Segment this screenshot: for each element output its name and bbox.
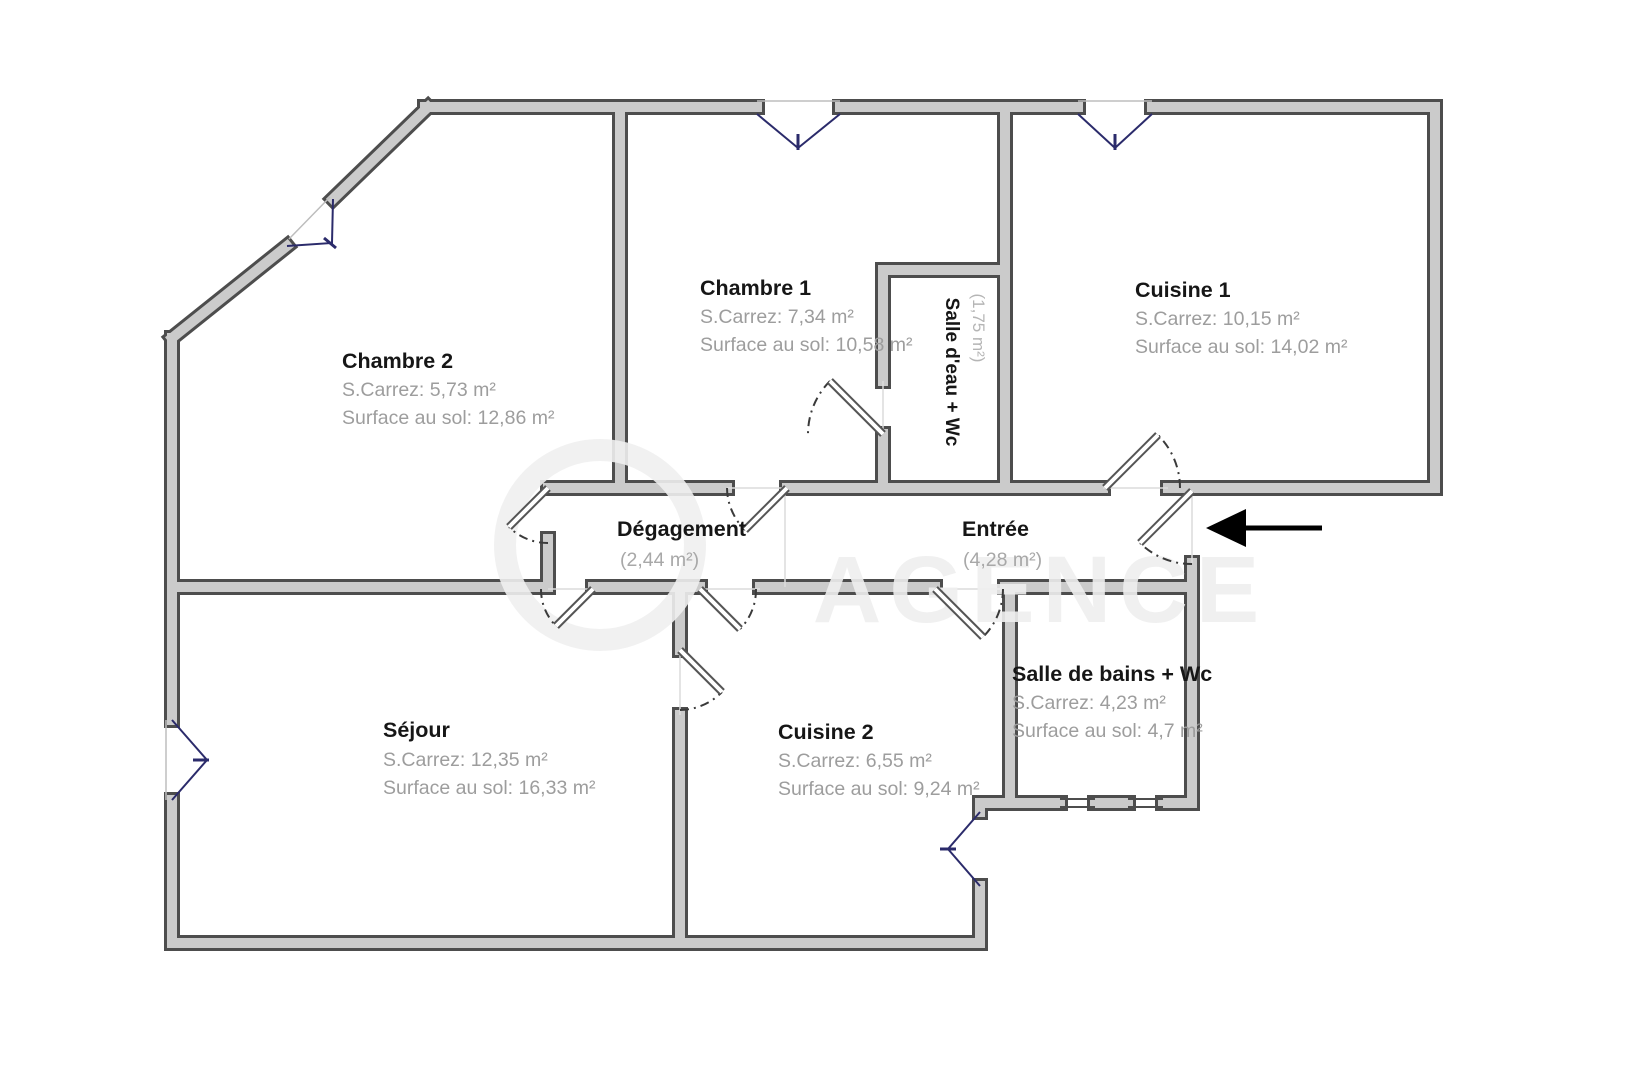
sejour-carrez: S.Carrez: 12,35 m² — [383, 749, 548, 771]
chambre1-floor: Surface au sol: 10,58 m² — [700, 334, 913, 356]
watermark-ring — [505, 450, 695, 640]
sejour-title: Séjour — [383, 718, 451, 742]
salle-de-bains-title: Salle de bains + Wc — [1012, 662, 1212, 686]
room-label-salle-deau: Salle d'eau + Wc (1,75 m²) — [941, 294, 988, 447]
degagement-area: (2,44 m²) — [620, 549, 699, 571]
chambre2-floor: Surface au sol: 12,86 m² — [342, 407, 555, 429]
cuisine2-title: Cuisine 2 — [778, 720, 874, 744]
room-label-salle-de-bains: Salle de bains + Wc S.Carrez: 4,23 m² Su… — [1012, 662, 1212, 742]
room-label-sejour: Séjour S.Carrez: 12,35 m² Surface au sol… — [383, 718, 596, 799]
degagement-title: Dégagement — [617, 517, 746, 541]
room-label-cuisine1: Cuisine 1 S.Carrez: 10,15 m² Surface au … — [1135, 278, 1348, 358]
room-label-degagement: Dégagement (2,44 m²) — [617, 517, 746, 571]
salle-de-bains-floor: Surface au sol: 4,7 m² — [1012, 720, 1203, 742]
cuisine1-carrez: S.Carrez: 10,15 m² — [1135, 308, 1300, 330]
cuisine2-floor: Surface au sol: 9,24 m² — [778, 778, 980, 800]
room-label-chambre2: Chambre 2 S.Carrez: 5,73 m² Surface au s… — [342, 349, 555, 429]
salle-deau-title: Salle d'eau + Wc — [941, 298, 962, 447]
chambre1-carrez: S.Carrez: 7,34 m² — [700, 306, 854, 328]
chambre2-title: Chambre 2 — [342, 349, 453, 373]
cuisine1-title: Cuisine 1 — [1135, 278, 1231, 302]
cuisine1-floor: Surface au sol: 14,02 m² — [1135, 336, 1348, 358]
chambre1-title: Chambre 1 — [700, 276, 811, 300]
floor-plan-svg: AGENCE Chambre 2 S.Carrez: 5,73 m² Surfa… — [0, 0, 1627, 1080]
sejour-floor: Surface au sol: 16,33 m² — [383, 777, 596, 799]
room-label-cuisine2: Cuisine 2 S.Carrez: 6,55 m² Surface au s… — [778, 720, 980, 800]
entree-title: Entrée — [962, 517, 1029, 541]
salle-de-bains-carrez: S.Carrez: 4,23 m² — [1012, 692, 1166, 714]
cuisine2-carrez: S.Carrez: 6,55 m² — [778, 750, 932, 772]
chambre2-carrez: S.Carrez: 5,73 m² — [342, 379, 496, 401]
entree-area: (4,28 m²) — [963, 549, 1042, 571]
salle-deau-area: (1,75 m²) — [969, 294, 988, 363]
floor-plan-page: AGENCE Chambre 2 S.Carrez: 5,73 m² Surfa… — [0, 0, 1627, 1080]
